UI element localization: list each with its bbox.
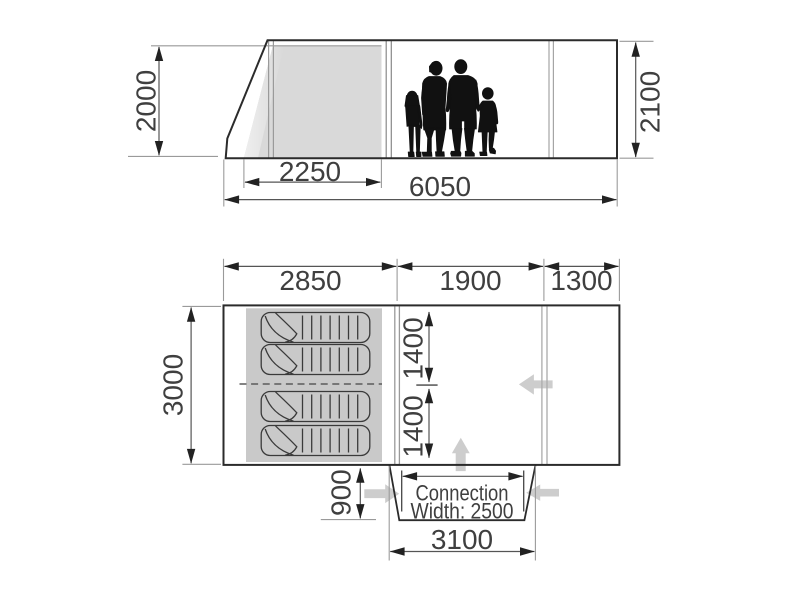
svg-text:1400: 1400 — [397, 395, 428, 457]
svg-text:Width: 2500: Width: 2500 — [411, 498, 514, 523]
svg-text:2100: 2100 — [635, 71, 666, 133]
svg-text:1900: 1900 — [439, 265, 501, 296]
svg-text:2250: 2250 — [279, 156, 341, 187]
svg-text:1300: 1300 — [550, 265, 612, 296]
svg-text:1400: 1400 — [397, 317, 428, 379]
svg-text:3100: 3100 — [431, 524, 493, 555]
svg-text:3000: 3000 — [158, 354, 189, 416]
svg-text:6050: 6050 — [409, 171, 471, 202]
svg-text:900: 900 — [325, 469, 356, 516]
svg-text:2000: 2000 — [131, 70, 162, 132]
svg-text:2850: 2850 — [279, 265, 341, 296]
